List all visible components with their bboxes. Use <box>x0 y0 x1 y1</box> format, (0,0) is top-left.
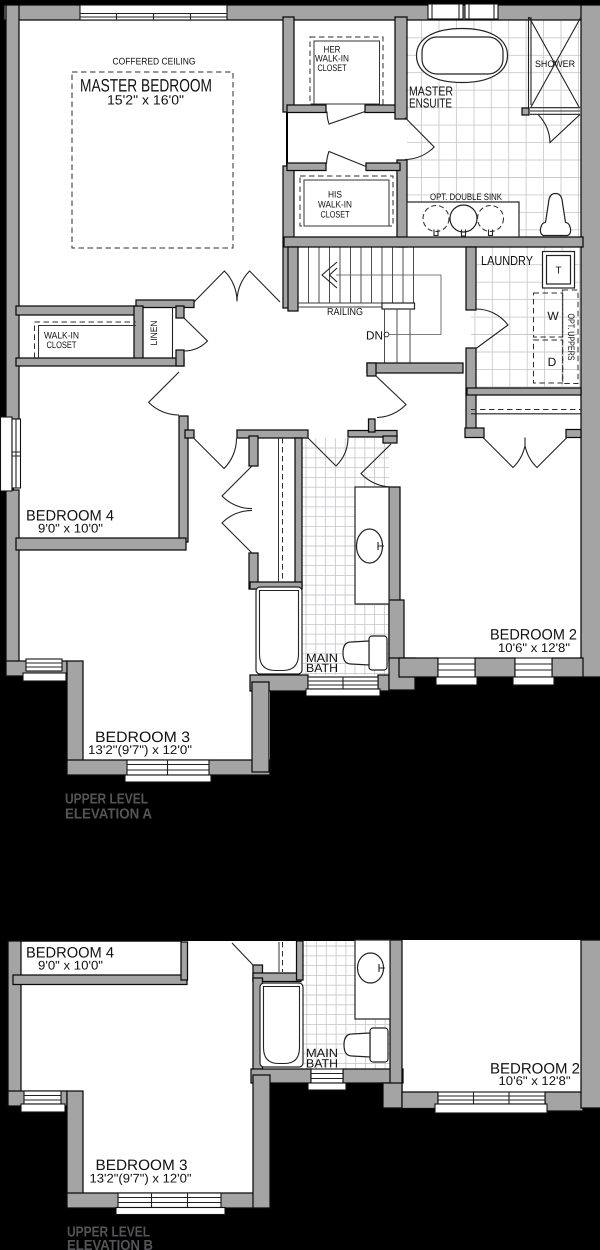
svg-text:SHOWER: SHOWER <box>535 58 575 69</box>
svg-text:15'2" x 16'0": 15'2" x 16'0" <box>107 93 184 108</box>
svg-text:W: W <box>547 309 559 323</box>
svg-text:DN: DN <box>366 329 383 343</box>
svg-text:COFFERED CEILING: COFFERED CEILING <box>113 57 196 68</box>
svg-text:13'2"(9'7") x 12'0": 13'2"(9'7") x 12'0" <box>90 1172 192 1186</box>
svg-text:ELEVATION A: ELEVATION A <box>65 807 152 823</box>
svg-text:UPPER LEVEL: UPPER LEVEL <box>65 792 148 808</box>
svg-text:ELEVATION B: ELEVATION B <box>67 1238 153 1250</box>
svg-text:T: T <box>555 266 561 277</box>
svg-text:OPT. DOUBLE SINK: OPT. DOUBLE SINK <box>430 191 503 202</box>
svg-text:9'0" x 10'0": 9'0" x 10'0" <box>38 959 103 973</box>
svg-text:LINEN: LINEN <box>148 321 159 346</box>
svg-text:BATH: BATH <box>306 1057 338 1071</box>
svg-text:CLOSET: CLOSET <box>321 209 350 220</box>
svg-text:10'6" x 12'8": 10'6" x 12'8" <box>498 641 570 655</box>
svg-text:ENSUITE: ENSUITE <box>409 96 452 111</box>
svg-text:OPT. UPPERS: OPT. UPPERS <box>566 314 577 361</box>
svg-text:CLOSET: CLOSET <box>318 62 347 73</box>
svg-text:13'2"(9'7") x 12'0": 13'2"(9'7") x 12'0" <box>88 743 192 757</box>
svg-text:9'0" x 10'0": 9'0" x 10'0" <box>38 522 103 536</box>
svg-text:D: D <box>548 355 557 369</box>
svg-text:RAILING: RAILING <box>327 307 363 318</box>
svg-text:BATH: BATH <box>306 661 338 675</box>
svg-text:10'6" x 12'8": 10'6" x 12'8" <box>499 1074 571 1088</box>
svg-text:CLOSET: CLOSET <box>47 339 77 350</box>
svg-text:LAUNDRY: LAUNDRY <box>481 253 533 268</box>
